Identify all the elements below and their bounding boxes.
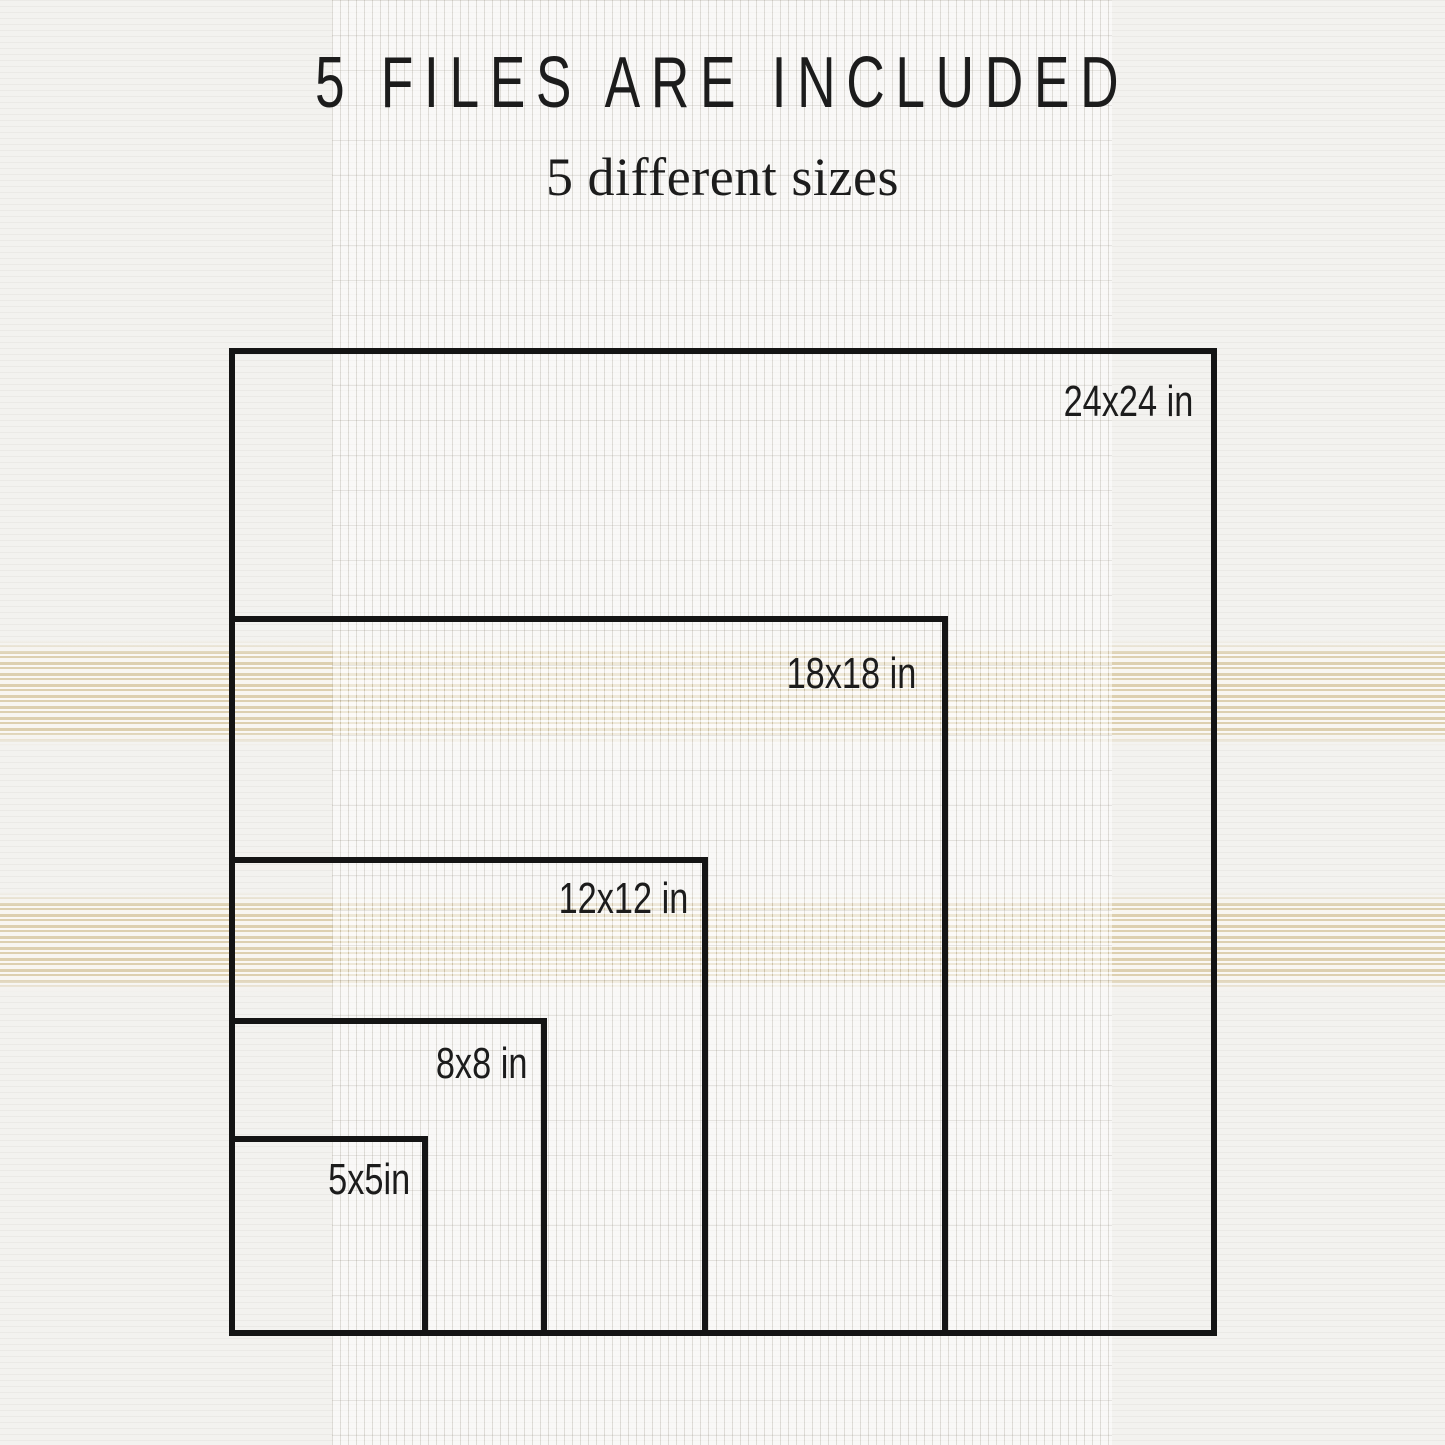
size-guide-page: 5 FILES ARE INCLUDED 5 different sizes 2… bbox=[0, 0, 1445, 1445]
size-label-12x12: 12x12 in bbox=[558, 877, 688, 921]
page-title: 5 FILES ARE INCLUDED bbox=[315, 46, 1129, 122]
size-label-18x18: 18x18 in bbox=[786, 652, 916, 696]
size-label-24x24: 24x24 in bbox=[1063, 380, 1193, 424]
header: 5 FILES ARE INCLUDED 5 different sizes bbox=[0, 46, 1445, 207]
size-square-5x5: 5x5in bbox=[229, 1136, 428, 1336]
page-subtitle: 5 different sizes bbox=[0, 148, 1445, 207]
size-label-8x8: 8x8 in bbox=[435, 1042, 527, 1086]
size-label-5x5: 5x5in bbox=[328, 1158, 410, 1202]
